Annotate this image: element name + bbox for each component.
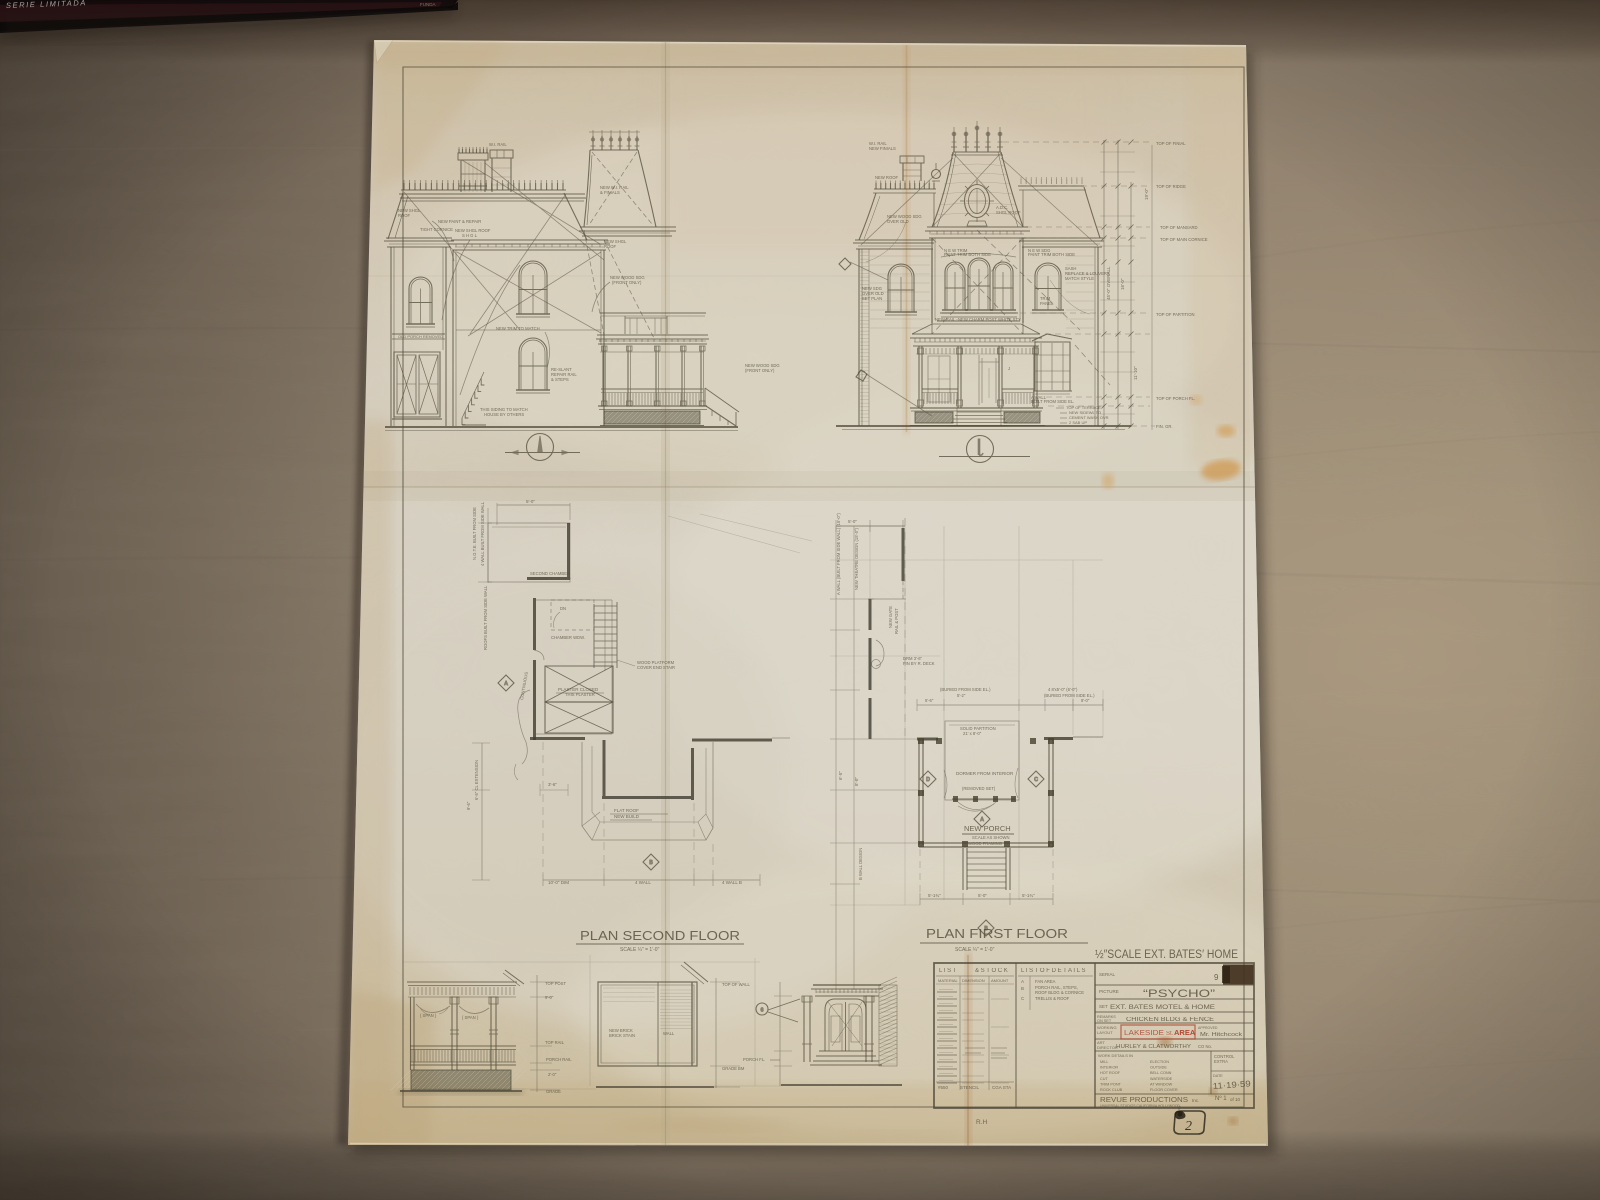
svg-text:2 SAB UP: 2 SAB UP xyxy=(1069,420,1087,425)
svg-text:AT WINDOW: AT WINDOW xyxy=(1150,1082,1173,1086)
svg-text:TOP OF FINIAL: TOP OF FINIAL xyxy=(1156,141,1186,146)
svg-text:WOOD FRAMING: WOOD FRAMING xyxy=(968,841,1002,846)
svg-text:5'-0": 5'-0" xyxy=(978,893,987,898)
svg-text:PLAN FIRST FLOOR: PLAN FIRST FLOOR xyxy=(926,927,1068,941)
svg-text:SCALE ¼" = 1′-0": SCALE ¼" = 1′-0" xyxy=(620,947,660,953)
svg-text:A: A xyxy=(1021,979,1024,984)
svg-text:8'-0": 8'-0" xyxy=(1081,698,1090,703)
svg-text:EXTRA: EXTRA xyxy=(1214,1059,1228,1064)
svg-text:(REMOVED SET): (REMOVED SET) xyxy=(962,786,996,791)
svg-text:SERIAL: SERIAL xyxy=(1099,972,1116,977)
svg-text:ON SET: ON SET xyxy=(1097,1019,1112,1023)
svg-text:PAINT TRIM BOTH SIDE: PAINT TRIM BOTH SIDE xyxy=(1028,252,1075,257)
svg-text:PICTURE: PICTURE xyxy=(1099,989,1119,994)
svg-text:SET: SET xyxy=(1099,1004,1108,1009)
svg-text:NEW CHARM POST WHITE STY.: NEW CHARM POST WHITE STY. xyxy=(958,317,1021,322)
svg-text:Nº 1: Nº 1 xyxy=(1215,1095,1227,1102)
svg-text:MILL: MILL xyxy=(1100,1060,1108,1064)
svg-text:TOP RAIL: TOP RAIL xyxy=(545,1040,565,1045)
svg-text:A WALL (BUILT FROM SIDE WALL): A WALL (BUILT FROM SIDE WALL) (16'-0") xyxy=(836,513,841,595)
svg-text:NEW GATE: NEW GATE xyxy=(888,606,893,628)
svg-text:16'-0": 16'-0" xyxy=(1120,278,1125,290)
svg-text:CGA STA: CGA STA xyxy=(992,1085,1011,1090)
svg-text:WINDOW REMOVED: WINDOW REMOVED xyxy=(530,576,571,581)
svg-text:& FINIALS: & FINIALS xyxy=(600,190,620,195)
svg-text:GRADE BM: GRADE BM xyxy=(722,1066,745,1071)
svg-text:& STEPS: & STEPS xyxy=(551,377,569,382)
svg-text:OLD PORCH REMOVED: OLD PORCH REMOVED xyxy=(398,334,443,339)
svg-text:(FRONT ONLY): (FRONT ONLY) xyxy=(612,280,642,285)
svg-text:PORCH RAIL: PORCH RAIL xyxy=(546,1057,572,1062)
svg-text:HURLEY & CLATWORTHY: HURLEY & CLATWORTHY xyxy=(1116,1044,1191,1050)
svg-text:5'-0": 5'-0" xyxy=(526,499,535,504)
svg-text:APPROVED: APPROVED xyxy=(1198,1026,1218,1030)
svg-text:10'-0" DIM: 10'-0" DIM xyxy=(548,880,569,885)
svg-text:Inc.: Inc. xyxy=(1192,1098,1199,1103)
svg-text:FIN. GR.: FIN. GR. xyxy=(1156,424,1173,429)
svg-text:21' x 8'-0": 21' x 8'-0" xyxy=(963,731,982,736)
svg-text:PAINT TRIM BOTH SIDE: PAINT TRIM BOTH SIDE xyxy=(944,252,991,257)
svg-text:ROOFS BUILT FROM SIDE WALL: ROOFS BUILT FROM SIDE WALL xyxy=(483,585,488,650)
svg-text:CHAMBER WDW.: CHAMBER WDW. xyxy=(551,635,585,640)
svg-text:½″SCALE EXT. BATES′ HOME: ½″SCALE EXT. BATES′ HOME xyxy=(1095,949,1238,961)
svg-text:FLAT ROOF: FLAT ROOF xyxy=(614,808,639,813)
svg-text:TOP OF WALL: TOP OF WALL xyxy=(722,982,751,987)
svg-text:HOUSE BY OTHERS: HOUSE BY OTHERS xyxy=(484,412,524,417)
svg-text:LAKESIDE: LAKESIDE xyxy=(1124,1030,1164,1037)
svg-text:19'-0": 19'-0" xyxy=(1144,188,1149,200)
svg-text:6'-5": 6'-5" xyxy=(838,771,843,780)
svg-text:3'-6": 3'-6" xyxy=(548,782,557,787)
svg-text:ROOF: ROOF xyxy=(398,213,411,218)
svg-text:OUTSIDE: OUTSIDE xyxy=(1150,1066,1167,1070)
svg-text:ELECTION: ELECTION xyxy=(1150,1060,1169,1064)
svg-text:SHGL ROOF: SHGL ROOF xyxy=(996,210,1021,215)
svg-text:PANEL: PANEL xyxy=(1040,301,1054,306)
svg-text:DIRECTOR: DIRECTOR xyxy=(1097,1045,1118,1050)
svg-text:INTERIOR: INTERIOR xyxy=(1100,1066,1118,1070)
svg-text:TIGHT CORNICE: TIGHT CORNICE xyxy=(420,227,453,232)
svg-text:5'-6": 5'-6" xyxy=(925,698,934,703)
svg-text:TOP OF RIDGE: TOP OF RIDGE xyxy=(1156,184,1186,189)
svg-text:NEW PAINT & REPAIR: NEW PAINT & REPAIR xyxy=(438,219,481,224)
svg-text:5'-0": 5'-0" xyxy=(848,519,857,524)
svg-text:C: C xyxy=(1034,777,1038,783)
svg-text:of 10: of 10 xyxy=(1230,1097,1241,1102)
svg-text:DORMER FROM INTERIOR: DORMER FROM INTERIOR xyxy=(956,771,1014,776)
svg-text:9'-6": 9'-6" xyxy=(466,801,471,810)
svg-text:B WALL DESIGN: B WALL DESIGN xyxy=(858,848,863,880)
svg-text:ROOF BLDG & CORNICE: ROOF BLDG & CORNICE xyxy=(1035,990,1084,995)
svg-text:SCALE AS SHOWN: SCALE AS SHOWN xyxy=(972,835,1009,840)
svg-text:L I S T O F D E T A I L S: L I S T O F D E T A I L S xyxy=(1021,968,1085,974)
svg-text:TOP OF PARTITION: TOP OF PARTITION xyxy=(1156,312,1195,317)
svg-text:UNIVERSAL STUDIOS CALIFORNIA H: UNIVERSAL STUDIOS CALIFORNIA HOLLYWOOD xyxy=(1100,1104,1180,1108)
svg-text:(BURIED FROM SIDE EL.): (BURIED FROM SIDE EL.) xyxy=(940,687,991,692)
svg-text:CUT: CUT xyxy=(1100,1077,1108,1081)
svg-text:GRADE: GRADE xyxy=(546,1089,561,1094)
svg-text:REVUE PRODUCTIONS: REVUE PRODUCTIONS xyxy=(1100,1097,1188,1104)
svg-text:AMOUNT: AMOUNT xyxy=(991,978,1009,983)
svg-text:NEW ROOF: NEW ROOF xyxy=(875,175,898,180)
svg-text:FLOOR COVER: FLOOR COVER xyxy=(1150,1088,1178,1092)
svg-text:4 WALL: 4 WALL xyxy=(635,880,651,885)
svg-text:2'-0": 2'-0" xyxy=(548,1072,557,1077)
svg-text:NEW TRIM TO MATCH: NEW TRIM TO MATCH xyxy=(496,326,540,331)
svg-text:NEW BUILD: NEW BUILD xyxy=(614,814,640,819)
svg-text:NEW THEATRE DESIGN (15'-0"): NEW THEATRE DESIGN (15'-0") xyxy=(854,527,859,590)
svg-text:2: 2 xyxy=(1185,1119,1192,1134)
svg-text:DIMENSION: DIMENSION xyxy=(962,978,985,983)
svg-text:6'-5" CL EXTENSION: 6'-5" CL EXTENSION xyxy=(474,760,479,800)
svg-text:8'-0": 8'-0" xyxy=(854,777,859,786)
svg-text:ROCK CLUB: ROCK CLUB xyxy=(1100,1088,1123,1092)
svg-text:“PSYCHO”: “PSYCHO” xyxy=(1143,988,1215,1000)
svg-text:{ SPAN }: { SPAN } xyxy=(420,1013,437,1018)
svg-text:SCALE ¼" = 1′-0": SCALE ¼" = 1′-0" xyxy=(955,947,995,953)
svg-text:5'-2": 5'-2" xyxy=(957,693,966,698)
svg-text:{ SPAN }: { SPAN } xyxy=(462,1015,479,1020)
svg-text:PLAN SECOND FLOOR: PLAN SECOND FLOOR xyxy=(580,929,740,943)
svg-text:5'-1¾": 5'-1¾" xyxy=(928,893,941,898)
svg-text:BRICK STAIN: BRICK STAIN xyxy=(609,1033,635,1038)
svg-text:(FRONT ONLY): (FRONT ONLY) xyxy=(745,368,775,373)
svg-text:NEW PORCH: NEW PORCH xyxy=(964,824,1011,833)
svg-text:SET PLAN: SET PLAN xyxy=(862,296,882,301)
svg-text:FIN BY R. DECK: FIN BY R. DECK xyxy=(903,661,935,666)
svg-text:TOP OF MANSARD: TOP OF MANSARD xyxy=(1160,225,1198,230)
svg-text:STENCIL: STENCIL xyxy=(960,1085,980,1090)
svg-text:S H G L: S H G L xyxy=(462,233,478,238)
svg-text:& S T O C K: & S T O C K xyxy=(975,968,1008,974)
svg-text:EXT. BATES MOTEL & HOME: EXT. BATES MOTEL & HOME xyxy=(1110,1004,1216,1011)
svg-text:NEW RAIL -: NEW RAIL - xyxy=(935,317,958,322)
svg-text:WATERSIDE: WATERSIDE xyxy=(1150,1077,1173,1081)
svg-text:TRELLIS & ROOF: TRELLIS & ROOF xyxy=(1035,996,1070,1001)
svg-text:RAIL & POST: RAIL & POST xyxy=(894,608,899,634)
svg-text:4 WALL B: 4 WALL B xyxy=(722,880,742,885)
svg-text:DATE: DATE xyxy=(1213,1074,1223,1078)
svg-text:Mr. Hitchcock: Mr. Hitchcock xyxy=(1200,1032,1243,1038)
svg-text:11'-10": 11'-10" xyxy=(1133,366,1138,380)
svg-text:TOP OF PORCH FL.: TOP OF PORCH FL. xyxy=(1156,396,1195,401)
svg-text:B: B xyxy=(1021,986,1024,991)
svg-text:COVER END STAIR: COVER END STAIR xyxy=(637,665,675,670)
svg-text:FAN AREA: FAN AREA xyxy=(1035,979,1056,984)
svg-text:BELL CONN: BELL CONN xyxy=(1150,1071,1172,1075)
svg-text:WORK DETAILS IN: WORK DETAILS IN xyxy=(1098,1053,1133,1058)
svg-text:TOP OF MAIN CORNICE: TOP OF MAIN CORNICE xyxy=(1160,237,1208,242)
svg-text:St.: St. xyxy=(1166,1031,1174,1037)
svg-text:DN: DN xyxy=(560,606,566,611)
svg-text:#550: #550 xyxy=(938,1085,949,1090)
svg-text:NEW FINIALS: NEW FINIALS xyxy=(869,146,896,151)
svg-text:WALL: WALL xyxy=(663,1031,675,1036)
svg-text:TRIM PONT: TRIM PONT xyxy=(1100,1082,1122,1086)
svg-text:D: D xyxy=(926,777,930,783)
svg-text:PORCH FL.: PORCH FL. xyxy=(743,1057,765,1062)
svg-text:ROOF: ROOF xyxy=(604,244,617,249)
svg-text:LAYOUT: LAYOUT xyxy=(1097,1030,1113,1035)
svg-text:HOT ROOF: HOT ROOF xyxy=(1100,1071,1121,1075)
svg-text:W.I. RAIL: W.I. RAIL xyxy=(489,142,507,147)
svg-text:6: 6 xyxy=(761,1008,764,1014)
svg-text:BUILT FROM SIDE EL.: BUILT FROM SIDE EL. xyxy=(1031,399,1074,404)
svg-text:J: J xyxy=(1008,366,1010,371)
svg-text:N.O.T.E. BUILT FROM SIDE: N.O.T.E. BUILT FROM SIDE xyxy=(472,507,477,560)
svg-text:#: # xyxy=(1178,1106,1181,1112)
svg-text:AREA: AREA xyxy=(1174,1028,1196,1037)
svg-text:TOP POST: TOP POST xyxy=(545,981,566,986)
svg-text:R.H: R.H xyxy=(976,1119,988,1126)
svg-text:CO No.: CO No. xyxy=(1198,1044,1212,1049)
svg-text:5'-1¾": 5'-1¾" xyxy=(1022,893,1035,898)
svg-text:9'-0": 9'-0" xyxy=(545,995,554,1000)
svg-text:4 WALL BUILT FROM SIDE WALL: 4 WALL BUILT FROM SIDE WALL xyxy=(480,501,485,566)
svg-text:CHICKEN BLDG & FENCE: CHICKEN BLDG & FENCE xyxy=(1126,1017,1214,1023)
svg-text:MATCH STYLE: MATCH STYLE xyxy=(1065,276,1094,281)
svg-text:L I S T: L I S T xyxy=(939,968,957,974)
svg-text:MATERIAL: MATERIAL xyxy=(938,978,958,983)
svg-text:4 8'x5'-0" (6'-0"): 4 8'x5'-0" (6'-0") xyxy=(1048,687,1078,692)
svg-text:9: 9 xyxy=(1214,973,1219,982)
